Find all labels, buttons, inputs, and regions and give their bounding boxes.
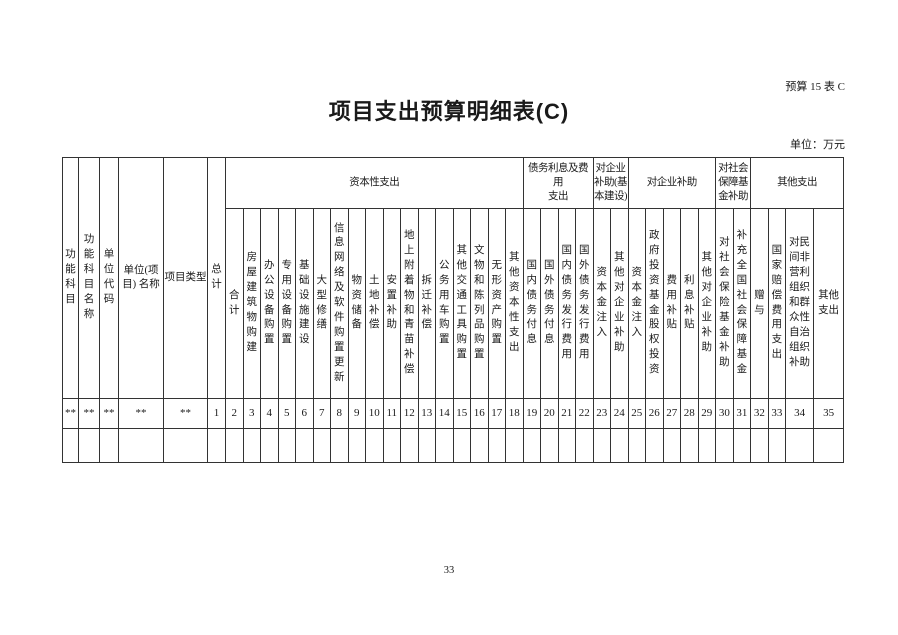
- data-cell: [63, 429, 79, 463]
- col-header-label: 资本金注入: [596, 266, 608, 341]
- column-number: 34: [786, 399, 814, 429]
- column-number: 11: [383, 399, 401, 429]
- column-header: 国外债务发行费用: [576, 209, 594, 399]
- column-header: 大型修缮: [313, 209, 331, 399]
- column-code: 1: [208, 399, 226, 429]
- column-number: 12: [401, 399, 419, 429]
- column-header: 地上附着物和青苗补偿: [401, 209, 419, 399]
- column-code: **: [164, 399, 208, 429]
- data-cell: [716, 429, 734, 463]
- col-header-label: 其他对企业补助: [613, 251, 625, 355]
- col-header-unit-code: 单位代码: [100, 158, 119, 399]
- col-header-label: 对民间非营利组织和群众性自治组织补助: [788, 236, 811, 370]
- column-number: 18: [506, 399, 524, 429]
- data-cell: [786, 429, 814, 463]
- data-cell: [663, 429, 681, 463]
- col-header-label: 基础设施建设: [298, 259, 310, 348]
- data-cell: [366, 429, 384, 463]
- col-header-label: 赠与: [753, 289, 765, 319]
- column-header: 资本金注入: [628, 209, 646, 399]
- column-header: 国外债务付息: [541, 209, 559, 399]
- col-header-label: 功能科目: [65, 248, 77, 308]
- column-header: 其他支出: [814, 209, 844, 399]
- data-cell: [119, 429, 164, 463]
- data-cell: [383, 429, 401, 463]
- data-cell: [453, 429, 471, 463]
- data-cell: [100, 429, 119, 463]
- column-header: 国内债务付息: [523, 209, 541, 399]
- col-header-label: 无形资产购置: [491, 259, 503, 348]
- group-other-expenditure: 其他支出: [751, 158, 844, 209]
- col-header-label: 其他资本性支出: [508, 251, 520, 355]
- column-number: 2: [226, 399, 244, 429]
- data-cell: [558, 429, 576, 463]
- col-header-label: 办公设备购置: [263, 259, 275, 348]
- col-header-label: 土地补偿: [368, 274, 380, 334]
- column-header: 信息网络及软件购置更新: [331, 209, 349, 399]
- column-code: **: [119, 399, 164, 429]
- column-header: 资本金注入: [593, 209, 611, 399]
- data-cell: [348, 429, 366, 463]
- col-header-label: 拆迁补偿: [421, 274, 433, 334]
- col-header-label: 文物和陈列品购置: [473, 244, 485, 363]
- column-number: 10: [366, 399, 384, 429]
- column-code: **: [100, 399, 119, 429]
- data-cell: [751, 429, 769, 463]
- data-cell: [436, 429, 454, 463]
- data-cell: [261, 429, 279, 463]
- column-number: 19: [523, 399, 541, 429]
- column-header: 对民间非营利组织和群众性自治组织补助: [786, 209, 814, 399]
- column-number: 31: [733, 399, 751, 429]
- column-number: 22: [576, 399, 594, 429]
- data-cell: [471, 429, 489, 463]
- column-number: 9: [348, 399, 366, 429]
- col-header-label: 总计: [211, 263, 223, 293]
- column-header: 合计: [226, 209, 244, 399]
- column-header: 政府投资基金股权投资: [646, 209, 664, 399]
- col-header-label: 专用设备购置: [281, 259, 293, 348]
- column-code: **: [79, 399, 100, 429]
- col-header-label: 房屋建筑物购建: [246, 251, 258, 355]
- column-header: 土地补偿: [366, 209, 384, 399]
- data-cell: [331, 429, 349, 463]
- column-number: 15: [453, 399, 471, 429]
- column-header: 利息补贴: [681, 209, 699, 399]
- data-cell: [488, 429, 506, 463]
- group-enterprise-subsidy: 对企业补助: [628, 158, 716, 209]
- col-header-label: 安置补助: [386, 274, 398, 334]
- group-debt-interest-and-fees: 债务利息及费用 支出: [523, 158, 593, 209]
- col-header-label: 对社会保险基金补助: [718, 236, 730, 370]
- data-cell: [611, 429, 629, 463]
- column-header: 补充全国社会保障基金: [733, 209, 751, 399]
- column-number: 20: [541, 399, 559, 429]
- col-header-label: 功能科目名称: [83, 233, 95, 322]
- data-cell: [278, 429, 296, 463]
- col-header-label: 物资储备: [351, 274, 363, 334]
- column-header: 办公设备购置: [261, 209, 279, 399]
- col-header-functional-subject: 功能科目: [63, 158, 79, 399]
- data-cell: [226, 429, 244, 463]
- col-header-functional-subject-name: 功能科目名称: [79, 158, 100, 399]
- column-header: 房屋建筑物购建: [243, 209, 261, 399]
- col-header-label: 国内债务付息: [526, 259, 538, 348]
- column-number: 35: [814, 399, 844, 429]
- column-header: 公务用车购置: [436, 209, 454, 399]
- column-number: 23: [593, 399, 611, 429]
- column-number: 4: [261, 399, 279, 429]
- column-number: 6: [296, 399, 314, 429]
- column-number: 26: [646, 399, 664, 429]
- data-cell: [576, 429, 594, 463]
- column-number: 16: [471, 399, 489, 429]
- col-header-label: 利息补贴: [683, 274, 695, 334]
- col-header-label: 费用补贴: [666, 274, 678, 334]
- column-header: 对社会保险基金补助: [716, 209, 734, 399]
- column-number: 27: [663, 399, 681, 429]
- column-number: 25: [628, 399, 646, 429]
- column-header: 其他对企业补助: [698, 209, 716, 399]
- column-header: 文物和陈列品购置: [471, 209, 489, 399]
- col-header-label: 其他支出: [817, 289, 840, 319]
- col-header-label: 信息网络及软件购置更新: [333, 222, 345, 386]
- column-number: 7: [313, 399, 331, 429]
- data-cell: [296, 429, 314, 463]
- group-enterprise-subsidy-capital-construction: 对企业 补助(基 本建设): [593, 158, 628, 209]
- column-code: **: [63, 399, 79, 429]
- col-header-unit-project-name: 单位(项 目) 名称: [119, 158, 164, 399]
- data-cell: [541, 429, 559, 463]
- column-number: 28: [681, 399, 699, 429]
- column-number: 21: [558, 399, 576, 429]
- col-header-label: 单位代码: [103, 248, 115, 308]
- col-header-label: 公务用车购置: [438, 259, 450, 348]
- page-title: 项目支出预算明细表(C): [0, 94, 898, 126]
- col-header-label: 大型修缮: [316, 274, 328, 334]
- column-header: 拆迁补偿: [418, 209, 436, 399]
- col-header-label: 国外债务付息: [543, 259, 555, 348]
- column-header: 其他对企业补助: [611, 209, 629, 399]
- column-header: 其他资本性支出: [506, 209, 524, 399]
- doc-code: 预算 15 表 C: [785, 78, 845, 94]
- column-number: 33: [768, 399, 786, 429]
- column-header: 国家赔偿费用支出: [768, 209, 786, 399]
- column-number: 8: [331, 399, 349, 429]
- column-number: 17: [488, 399, 506, 429]
- column-number: 32: [751, 399, 769, 429]
- col-header-label: 其他交通工具购置: [456, 244, 468, 363]
- col-header-label: 补充全国社会保障基金: [736, 229, 748, 378]
- data-cell: [733, 429, 751, 463]
- data-cell: [698, 429, 716, 463]
- column-header: 安置补助: [383, 209, 401, 399]
- data-cell: [628, 429, 646, 463]
- group-capital-expenditure: 资本性支出: [226, 158, 524, 209]
- column-header: 专用设备购置: [278, 209, 296, 399]
- column-number: 5: [278, 399, 296, 429]
- data-cell: [768, 429, 786, 463]
- column-header: 基础设施建设: [296, 209, 314, 399]
- column-header: 费用补贴: [663, 209, 681, 399]
- unit-label: 单位：万元: [790, 136, 845, 152]
- column-header: 国内债务发行费用: [558, 209, 576, 399]
- data-cell: [164, 429, 208, 463]
- column-number: 13: [418, 399, 436, 429]
- col-header-label: 地上附着物和青苗补偿: [403, 229, 415, 378]
- data-cell: [313, 429, 331, 463]
- column-number: 30: [716, 399, 734, 429]
- col-header-label: 国外债务发行费用: [578, 244, 590, 363]
- data-cell: [243, 429, 261, 463]
- col-header-label: 其他对企业补助: [701, 251, 713, 355]
- data-cell: [814, 429, 844, 463]
- data-cell: [79, 429, 100, 463]
- column-header: 物资储备: [348, 209, 366, 399]
- data-cell: [593, 429, 611, 463]
- data-cell: [681, 429, 699, 463]
- data-cell: [523, 429, 541, 463]
- page-number: 33: [0, 565, 898, 576]
- data-cell: [208, 429, 226, 463]
- group-social-security-fund-subsidy: 对社会 保障基 金补助: [716, 158, 751, 209]
- document-page: 预算 15 表 C 项目支出预算明细表(C) 单位：万元 功能科目 功能科目名称…: [0, 0, 898, 635]
- column-number: 24: [611, 399, 629, 429]
- column-number: 3: [243, 399, 261, 429]
- column-number: 29: [698, 399, 716, 429]
- col-header-label: 政府投资基金股权投资: [648, 229, 660, 378]
- column-header: 其他交通工具购置: [453, 209, 471, 399]
- data-cell: [506, 429, 524, 463]
- data-cell: [401, 429, 419, 463]
- column-header: 赠与: [751, 209, 769, 399]
- col-header-total: 总计: [208, 158, 226, 399]
- col-header-project-type: 项目类型: [164, 158, 208, 399]
- col-header-label: 国内债务发行费用: [561, 244, 573, 363]
- data-cell: [418, 429, 436, 463]
- column-header: 无形资产购置: [488, 209, 506, 399]
- col-header-label: 合计: [228, 289, 240, 319]
- column-number: 14: [436, 399, 454, 429]
- col-header-label: 国家赔偿费用支出: [771, 244, 783, 363]
- budget-table: 功能科目 功能科目名称 单位代码 单位(项 目) 名称 项目类型 总计 资本性支…: [62, 157, 844, 463]
- col-header-label: 资本金注入: [631, 266, 643, 341]
- data-cell: [646, 429, 664, 463]
